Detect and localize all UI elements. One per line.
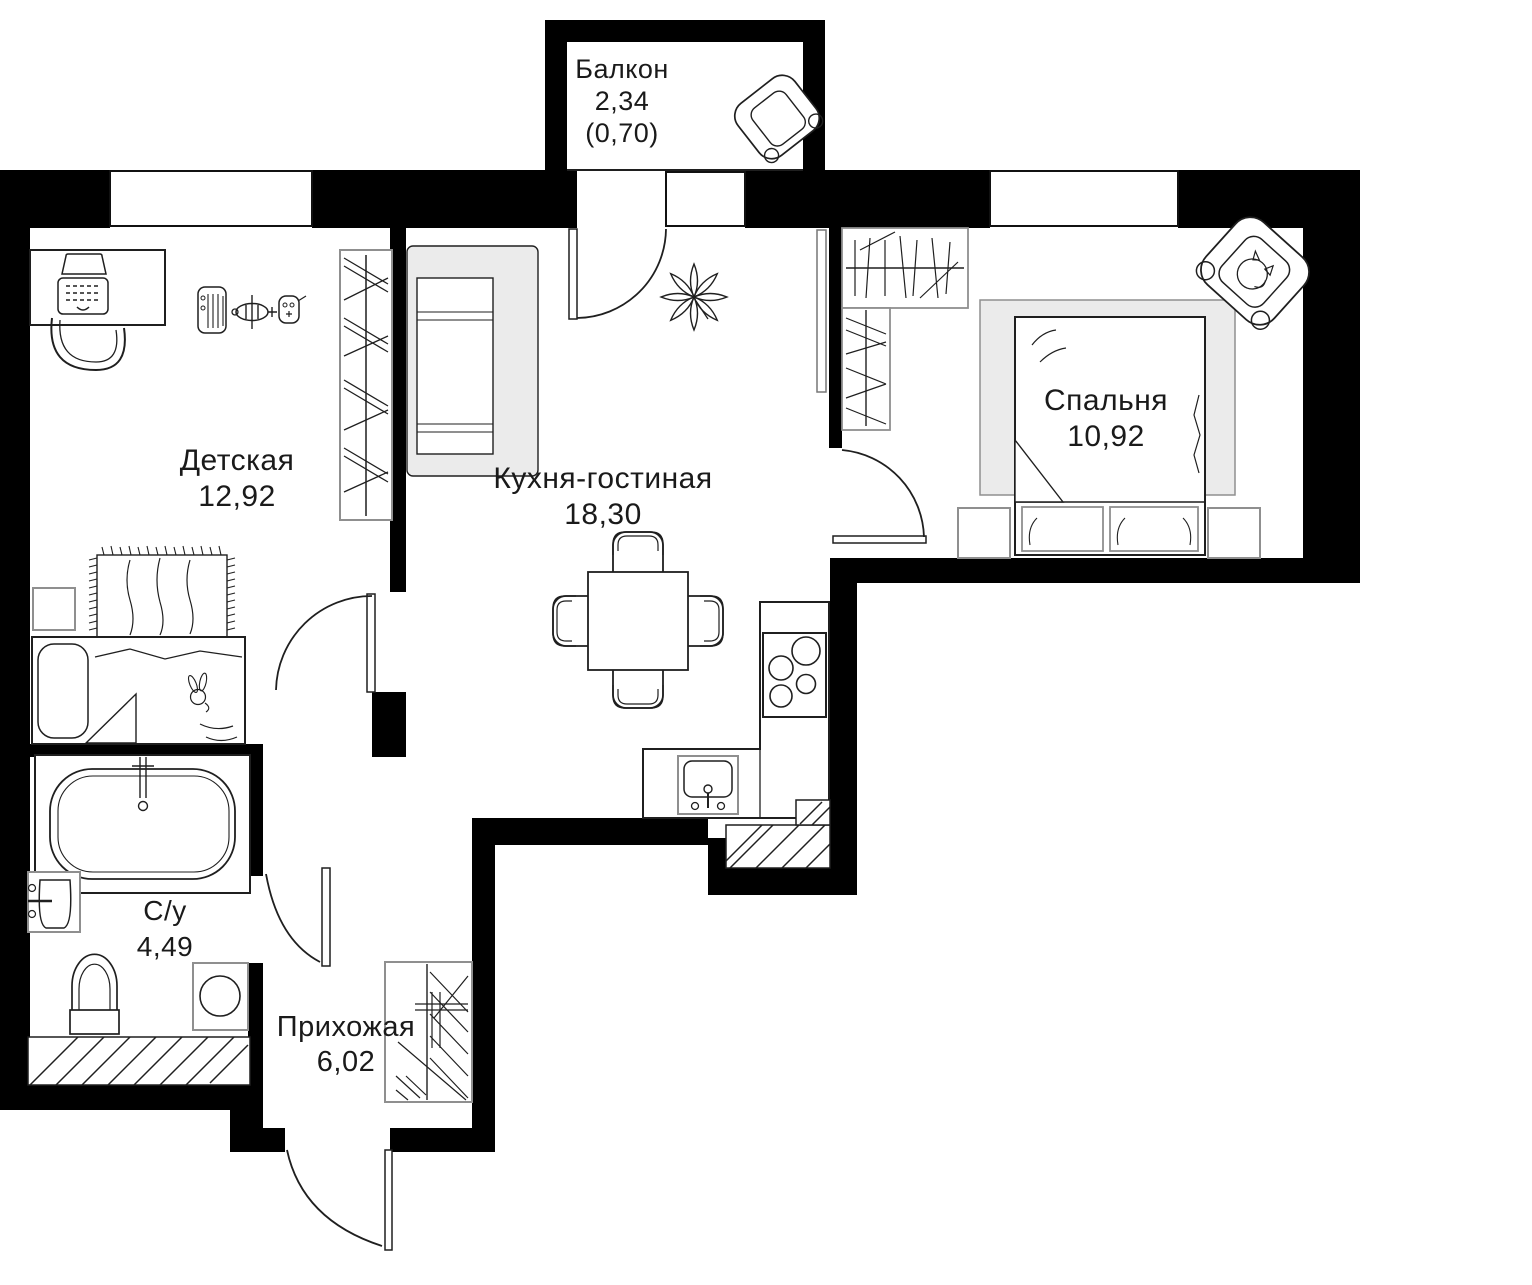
desk-icon: [30, 250, 165, 325]
stove-icon: [763, 633, 826, 717]
nightstand-icon: [1208, 508, 1260, 558]
window-icon: [110, 171, 312, 226]
label-balcony-area2: (0,70): [585, 118, 659, 148]
label-bathroom-name: С/у: [143, 895, 187, 926]
label-kitchen-area: 18,30: [564, 498, 642, 531]
dining-table-icon: [588, 572, 688, 670]
children-bed-icon: [32, 637, 245, 744]
wash-basin-icon: [28, 872, 80, 932]
balcony-door: [569, 229, 666, 319]
label-kitchen-name: Кухня-гостиная: [493, 462, 712, 495]
label-children-area: 12,92: [198, 480, 276, 513]
entrance-door: [287, 1150, 392, 1250]
label-bedroom-name: Спальня: [1044, 384, 1168, 417]
label-balcony-name: Балкон: [575, 54, 669, 84]
balcony-window-panel: [666, 172, 745, 226]
toy-plane-icon: [232, 295, 277, 329]
toilet-icon: [70, 954, 119, 1034]
kitchen-sink-icon: [678, 756, 738, 814]
toy-piano-icon: [198, 287, 226, 333]
floor-plan-canvas: Балкон 2,34 (0,70) Детская 12,92 Кухня-г…: [0, 0, 1532, 1285]
nightstand-icon: [33, 588, 75, 630]
sofa-icon: [407, 246, 538, 476]
sliding-panel: [817, 230, 826, 392]
plant-icon: [661, 264, 727, 330]
label-children-name: Детская: [180, 444, 295, 477]
label-hallway-name: Прихожая: [277, 1011, 415, 1043]
label-bathroom-area: 4,49: [137, 931, 194, 962]
label-hallway-area: 6,02: [317, 1046, 375, 1078]
windows: [110, 170, 1178, 226]
children-room-door: [276, 594, 375, 692]
wardrobe-hangers-icon: [340, 250, 392, 520]
toy-gamepad-icon: [279, 296, 306, 323]
label-bedroom-area: 10,92: [1067, 420, 1145, 453]
window-icon: [990, 171, 1178, 226]
ventilation-shaft-icon: [28, 1037, 250, 1085]
bathroom-door: [266, 868, 330, 966]
room-bathroom: [28, 755, 250, 1085]
nightstand-icon: [958, 508, 1010, 558]
washing-machine-icon: [193, 963, 248, 1030]
wardrobe-hangers-icon: [842, 228, 968, 430]
label-balcony-area: 2,34: [595, 86, 650, 116]
bedroom-door: [833, 450, 926, 543]
rug-icon: [89, 546, 235, 637]
dining-set: [553, 532, 723, 708]
floor-plan: Балкон 2,34 (0,70) Детская 12,92 Кухня-г…: [0, 0, 1532, 1285]
room-kitchen-living: [407, 230, 830, 868]
